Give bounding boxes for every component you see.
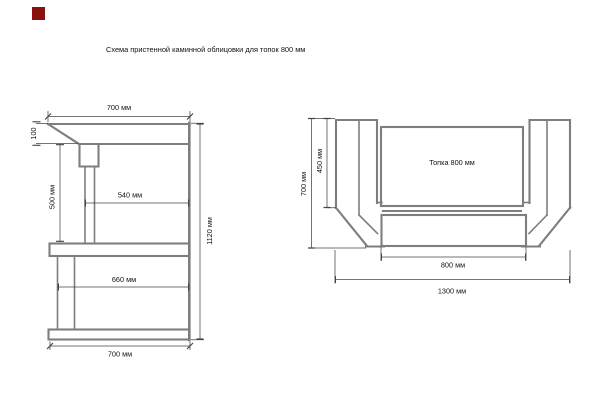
- dim-label-opening-height: 500 мм: [48, 185, 57, 209]
- middle-shelf: [50, 244, 190, 257]
- side-view-structure: [48, 123, 190, 340]
- plinth: [49, 330, 190, 340]
- fireplace-schematic: Схема пристенной каминной облицовки для …: [0, 0, 600, 400]
- dim-label-front-total-width: 1300 мм: [438, 287, 466, 296]
- left-pillar: [336, 120, 377, 208]
- dim-label-top-thickness: 100: [29, 127, 38, 139]
- firebox-label: Топка 800 мм: [429, 158, 475, 167]
- dim-label-base-depth: 660 мм: [112, 275, 136, 284]
- dim-label-total-height: 1120 мм: [205, 217, 214, 245]
- dim-label-bottom-width: 700 мм: [108, 350, 132, 359]
- drawing-canvas: Схема пристенной каминной облицовки для …: [0, 0, 600, 400]
- dim-label-front-total-height: 700 мм: [299, 172, 308, 196]
- right-pillar: [530, 120, 571, 208]
- dim-label-firebox-height: 450 мм: [315, 149, 324, 173]
- drawing-title: Схема пристенной каминной облицовки для …: [106, 45, 305, 54]
- dim-label-top-width: 700 мм: [107, 103, 131, 112]
- dim-label-firebox-width: 800 мм: [441, 261, 465, 270]
- base-platform: [382, 215, 527, 246]
- red-marker: [32, 7, 45, 20]
- dim-label-opening-depth: 540 мм: [118, 191, 142, 200]
- flue-box: [80, 144, 99, 167]
- front-view-structure: [336, 120, 570, 247]
